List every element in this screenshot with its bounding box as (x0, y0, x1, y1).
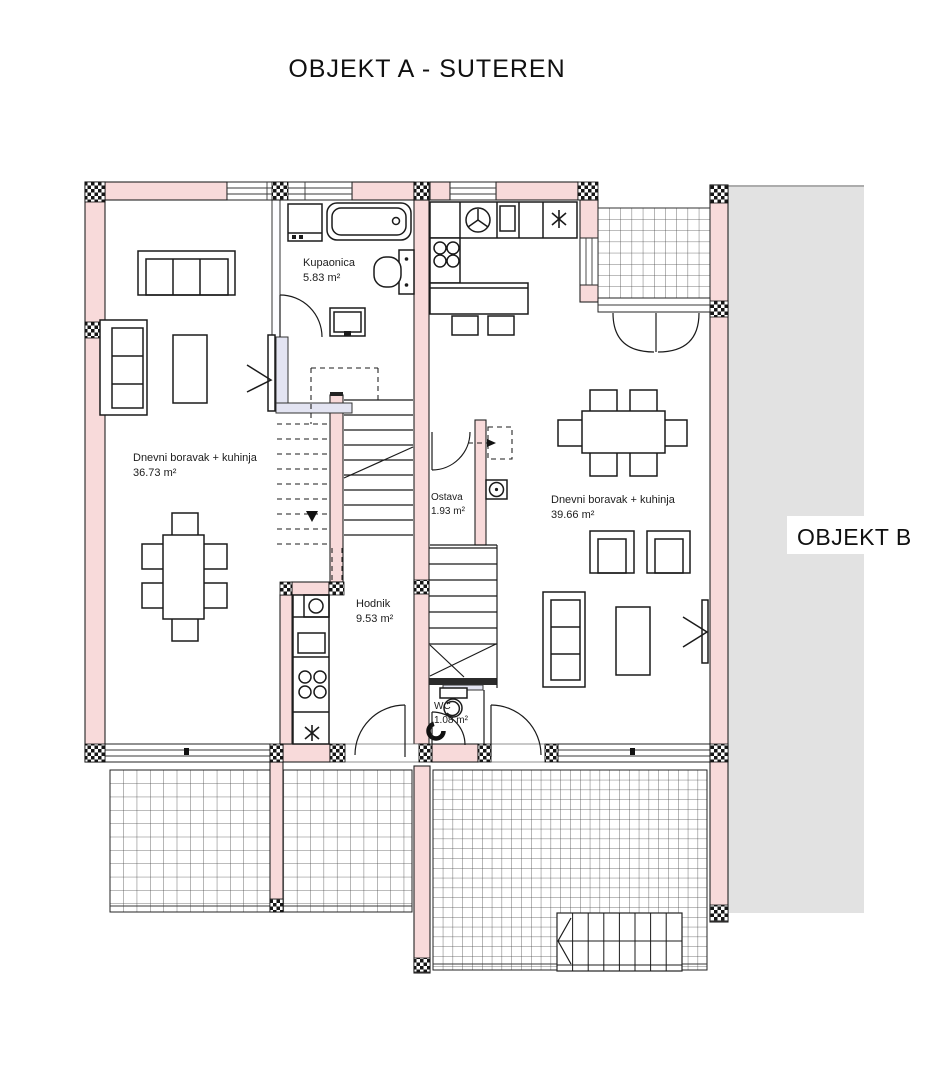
label-hodnik-area: 9.53 m² (356, 613, 394, 625)
adjacent-building-objekt-b: OBJEKT B (728, 185, 949, 913)
label-dnevni-right-area: 39.66 m² (551, 509, 595, 521)
wall-hodnik-left (280, 595, 292, 744)
wall-party (414, 200, 429, 744)
dashed-arrow-head (487, 439, 496, 447)
wall-left (85, 182, 105, 762)
stair-direction-arrow-icon (306, 511, 318, 522)
chair (590, 452, 617, 476)
bar-stool (452, 316, 478, 335)
furniture-left-unit (100, 251, 275, 641)
column (280, 582, 292, 595)
kitchen-right-unit (430, 202, 577, 335)
window-tick-left (184, 748, 189, 755)
ostava-door-swing (432, 432, 470, 470)
chair (172, 617, 198, 641)
column (710, 905, 728, 921)
winder-step-line (430, 645, 464, 677)
column (270, 899, 283, 912)
bathroom (280, 203, 414, 337)
right-unit-staircase (429, 427, 513, 745)
column (85, 744, 105, 762)
window-leaf (268, 335, 275, 411)
wall-top-1 (105, 182, 227, 200)
sofa-3seat (100, 320, 147, 415)
chair (630, 452, 657, 476)
wall-top-3 (430, 182, 450, 200)
stair-break-line (344, 447, 413, 478)
washing-machine-icon (288, 204, 322, 241)
balcony-tiles (598, 208, 710, 298)
window-tick-right (630, 748, 635, 755)
wall-ostava-right (475, 420, 486, 545)
glass-partition-vertical (276, 337, 288, 413)
sofa-3seat (543, 592, 585, 687)
wall-terrace-divider-left (270, 762, 283, 912)
column (710, 301, 728, 317)
label-kupaonica-name: Kupaonica (303, 257, 356, 269)
column (710, 744, 728, 762)
furniture-right-unit (543, 390, 708, 687)
french-door-icon (613, 313, 699, 352)
dining-table (582, 411, 665, 453)
wall-hodnik-top (292, 582, 329, 595)
bathtub-icon (327, 203, 411, 240)
stairs-below-treads (344, 400, 413, 535)
room-labels: Kupaonica 5.83 m² Dnevni boravak + kuhin… (133, 257, 676, 726)
balcony (598, 208, 710, 352)
coffee-table (616, 607, 650, 675)
chair (202, 583, 227, 608)
label-wc-area: 1.08 m² (434, 715, 469, 726)
wall-stair-spine (330, 395, 343, 582)
floorplan-drawing: OBJEKT B (0, 0, 949, 1080)
label-ostava-name: Ostava (431, 492, 463, 503)
floorplan-page: OBJEKT B (0, 0, 949, 1080)
sofa-3seat (138, 251, 235, 295)
exterior-stairs (557, 913, 682, 971)
label-dnevni-right-name: Dnevni boravak + kuhinja (551, 494, 676, 506)
dining-set (558, 390, 687, 476)
column (545, 744, 558, 762)
column (272, 182, 288, 200)
bathroom-door-swing (280, 295, 322, 337)
wall-bottom-2 (432, 744, 478, 762)
terrace-left (110, 770, 270, 912)
dining-table (163, 535, 204, 619)
wall-terrace-divider-right (414, 766, 430, 973)
terrace-middle (283, 770, 412, 912)
winder-step-line (430, 644, 496, 676)
label-kupaonica-area: 5.83 m² (303, 272, 341, 284)
label-hodnik-name: Hodnik (356, 598, 391, 610)
glass-partition-horizontal (276, 403, 352, 413)
armchair (647, 531, 690, 573)
column (578, 182, 598, 200)
column (329, 582, 344, 595)
label-ostava-area: 1.93 m² (431, 506, 466, 517)
kitchen-counter (430, 202, 577, 238)
coffee-table (173, 335, 207, 403)
armchair (590, 531, 634, 573)
column (710, 185, 728, 203)
wall-stair-spine-cap (330, 392, 343, 396)
adjacent-building-label: OBJEKT B (797, 524, 912, 550)
column (414, 580, 429, 594)
chair (202, 544, 227, 569)
bar-stool (488, 316, 514, 335)
central-staircase (277, 368, 413, 580)
boiler-icon (486, 480, 507, 499)
label-wc-name: WC (434, 701, 451, 712)
kitchen-left-unit (293, 595, 329, 744)
wall-right (710, 185, 728, 922)
column (270, 744, 283, 762)
window-balcony-wall (580, 238, 598, 285)
wall-wc-top (429, 678, 497, 685)
column (414, 958, 430, 972)
page-title: OBJEKT A - SUTEREN (288, 55, 565, 83)
label-dnevni-left-area: 36.73 m² (133, 467, 177, 479)
window-top-kitchen (450, 182, 496, 200)
toilet-icon (374, 250, 414, 294)
bathroom-sink-icon (330, 308, 365, 336)
dining-set (142, 513, 227, 641)
label-dnevni-left-name: Dnevni boravak + kuhinja (133, 452, 258, 464)
wall-bottom-1 (283, 744, 330, 762)
column (330, 744, 345, 762)
column (478, 744, 491, 762)
chair (558, 420, 584, 446)
wall-top-4 (496, 182, 578, 200)
terraces (110, 770, 707, 971)
window-top-left (227, 182, 352, 200)
door-opening-right-unit (491, 744, 545, 762)
partition-bathroom (272, 200, 280, 337)
chair (172, 513, 198, 537)
stair-treads (429, 548, 497, 644)
column (85, 182, 105, 202)
column (419, 744, 432, 762)
column (414, 182, 429, 200)
wall-top-2 (352, 182, 414, 200)
